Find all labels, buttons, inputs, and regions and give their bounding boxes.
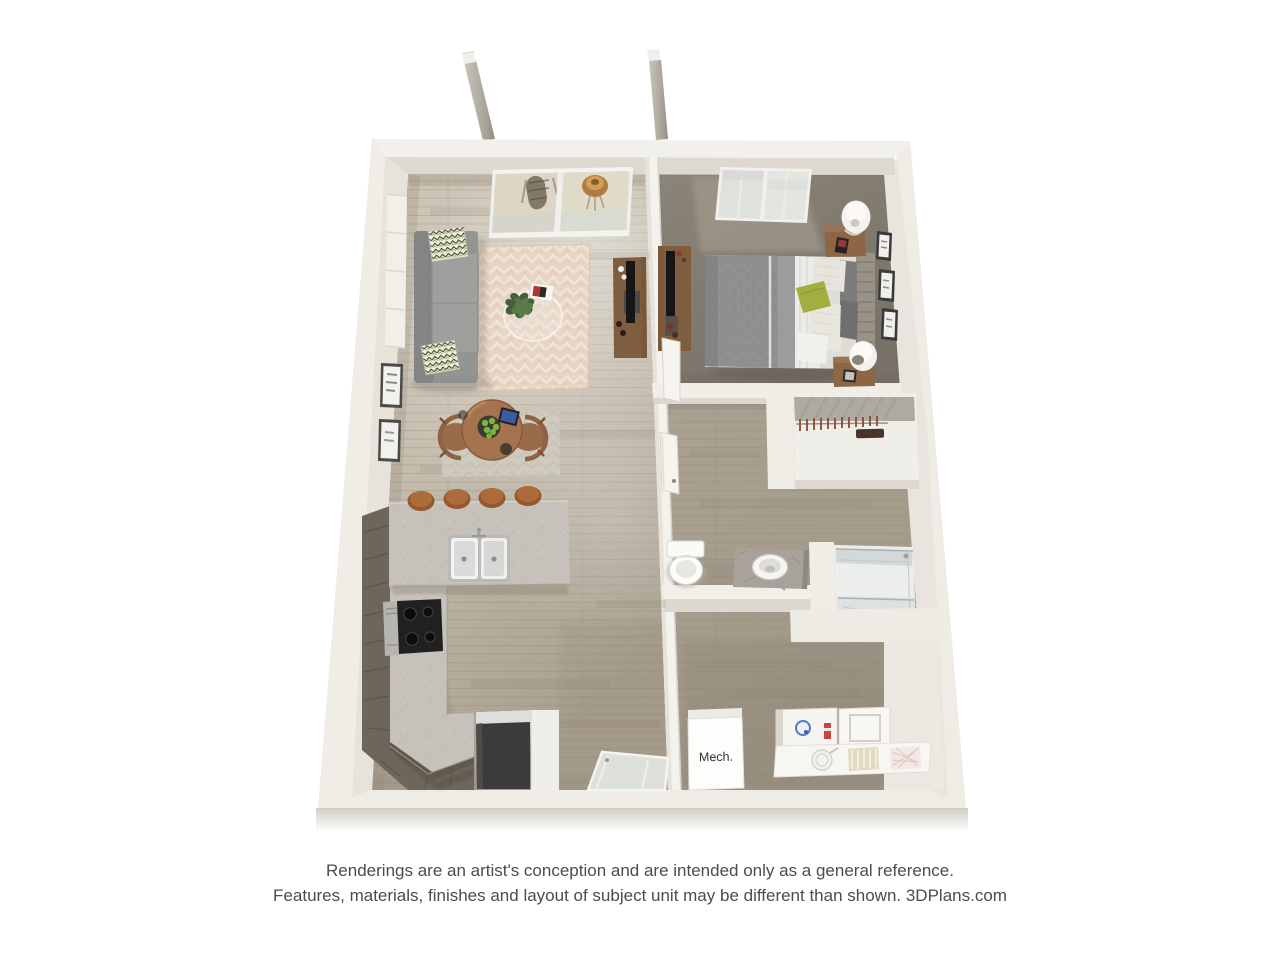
svg-text:Mech.: Mech. [699, 750, 733, 765]
